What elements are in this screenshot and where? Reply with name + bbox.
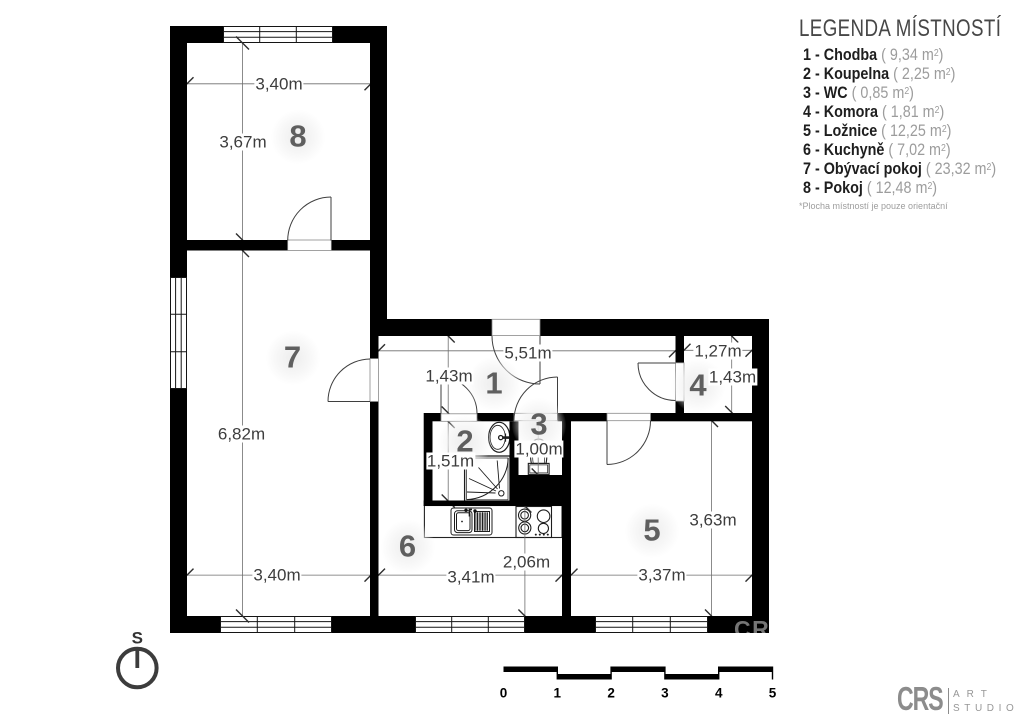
- svg-text:0: 0: [500, 686, 508, 701]
- svg-text:5: 5: [769, 686, 777, 701]
- svg-text:S: S: [132, 629, 143, 648]
- svg-text:2: 2: [607, 686, 615, 701]
- svg-text:4: 4: [715, 686, 723, 701]
- svg-text:3: 3: [661, 686, 669, 701]
- svg-text:1: 1: [554, 686, 562, 701]
